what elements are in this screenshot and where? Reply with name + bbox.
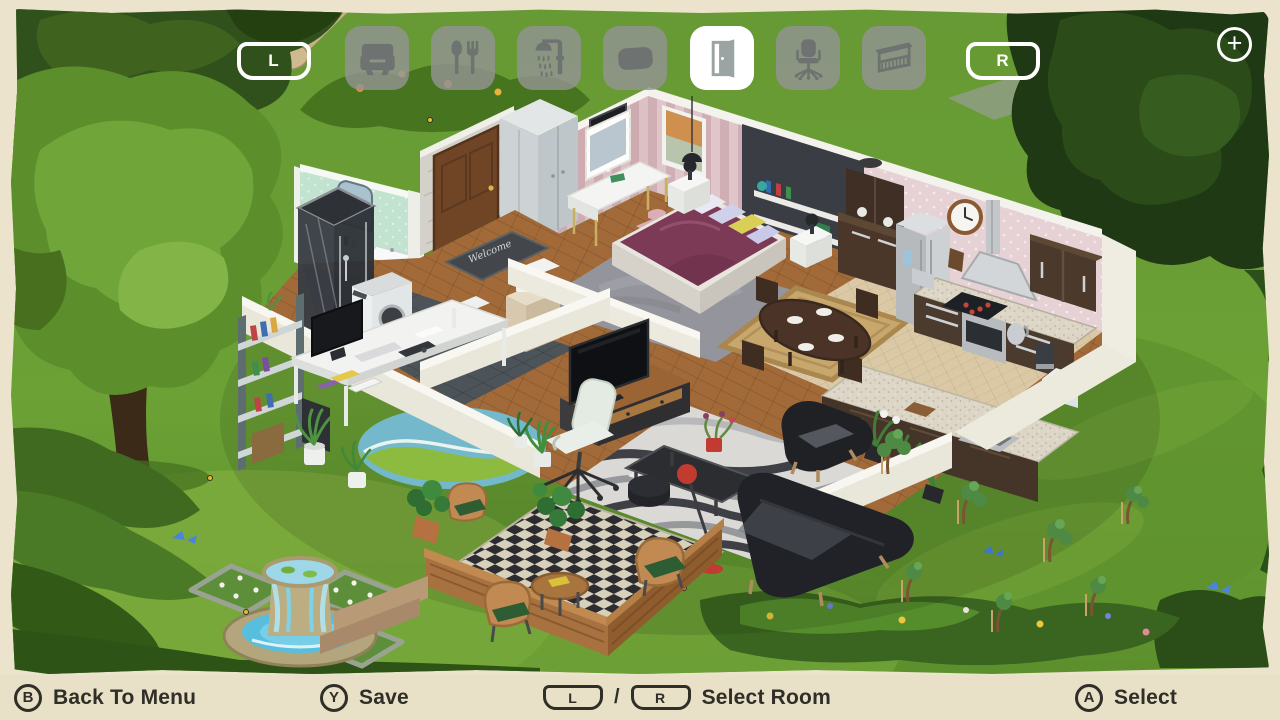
select-label: Select bbox=[1114, 686, 1177, 710]
office-chair-icon bbox=[785, 35, 832, 82]
select-button[interactable]: A Select bbox=[1075, 675, 1177, 720]
category-living-room-button[interactable] bbox=[345, 26, 409, 90]
door-icon bbox=[699, 35, 746, 82]
left-shoulder-label: L bbox=[268, 51, 279, 71]
wall-clock bbox=[949, 201, 981, 233]
y-button-icon: Y bbox=[320, 684, 348, 712]
right-shoulder-button[interactable]: R bbox=[966, 42, 1040, 80]
category-bathroom-button[interactable] bbox=[517, 26, 581, 90]
l-button-icon: L bbox=[543, 685, 603, 710]
b-button-letter: B bbox=[23, 689, 34, 706]
a-button-letter: A bbox=[1084, 689, 1095, 706]
plus-button[interactable]: + bbox=[1217, 27, 1252, 62]
category-bedroom-button[interactable] bbox=[603, 26, 667, 90]
pillow-icon bbox=[612, 35, 659, 82]
category-doors-button[interactable] bbox=[690, 26, 754, 90]
r-button-letter: R bbox=[655, 690, 666, 706]
left-shoulder-button[interactable]: L bbox=[237, 42, 311, 80]
category-balcony-button[interactable] bbox=[862, 26, 926, 90]
select-room-control[interactable]: L / R Select Room bbox=[543, 675, 831, 720]
l-button-letter: L bbox=[568, 690, 578, 706]
shower-icon bbox=[526, 35, 573, 82]
save-button[interactable]: Y Save bbox=[320, 675, 409, 720]
bush-bottom-right bbox=[1154, 590, 1269, 668]
category-dining-button[interactable] bbox=[431, 26, 495, 90]
armchair-icon bbox=[354, 35, 401, 82]
r-button-icon: R bbox=[631, 685, 691, 710]
y-button-letter: Y bbox=[329, 689, 339, 706]
save-label: Save bbox=[359, 686, 409, 710]
right-shoulder-label: R bbox=[996, 51, 1009, 71]
plus-icon: + bbox=[1227, 30, 1243, 57]
select-room-label: Select Room bbox=[702, 686, 831, 710]
cutlery-icon bbox=[440, 35, 487, 82]
back-to-menu-label: Back To Menu bbox=[53, 686, 196, 710]
b-button-icon: B bbox=[14, 684, 42, 712]
back-to-menu-button[interactable]: B Back To Menu bbox=[14, 675, 196, 720]
bottom-button-bar: B Back To Menu Y Save L / R Select Room … bbox=[0, 675, 1280, 720]
balcony-icon bbox=[871, 35, 918, 82]
game-scene: Welcome bbox=[11, 9, 1269, 674]
a-button-icon: A bbox=[1075, 684, 1103, 712]
pouf bbox=[628, 475, 670, 507]
slash-separator: / bbox=[614, 686, 620, 709]
category-office-button[interactable] bbox=[776, 26, 840, 90]
